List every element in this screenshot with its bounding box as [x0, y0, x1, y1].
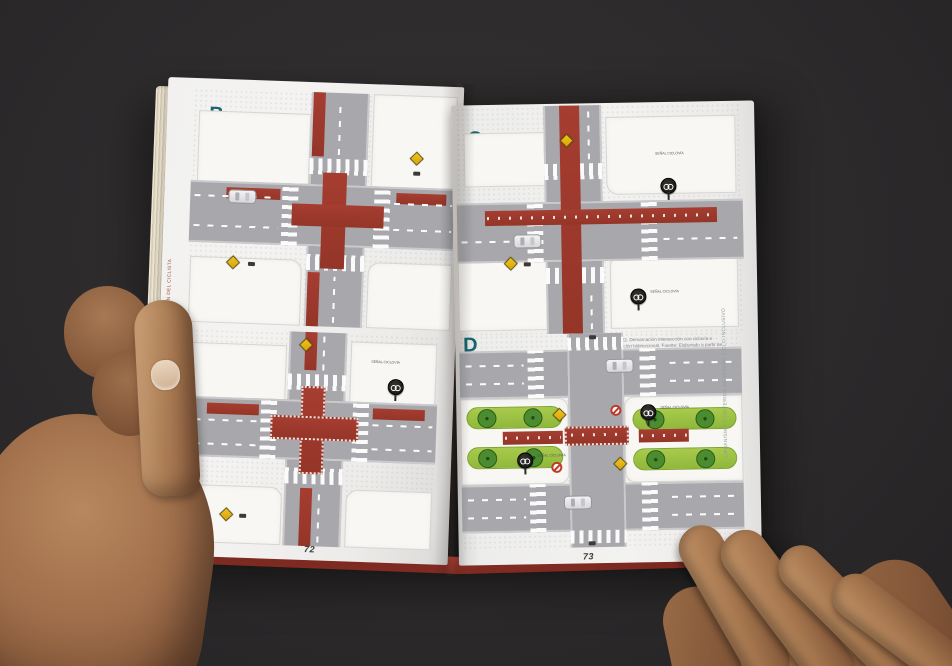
bike-lane-segment	[312, 92, 326, 156]
crosswalk	[639, 348, 656, 396]
tree	[696, 449, 715, 468]
crosswalk	[642, 482, 659, 530]
small-sign-plaque	[589, 335, 596, 339]
bike-crossing-horizontal	[291, 203, 384, 228]
page-number-left: 72	[304, 544, 315, 554]
car	[564, 495, 592, 509]
intersection-diagram-b-top	[186, 88, 458, 331]
sign-caption: SEÑAL CICLOVÍA	[660, 406, 692, 411]
car	[513, 234, 541, 248]
small-sign-plaque	[413, 172, 420, 176]
car	[605, 359, 633, 373]
sign-caption-wrap: SEÑAL CICLOVÍA	[650, 289, 720, 298]
sign-caption-wrap: SEÑAL CICLOVÍA	[660, 405, 724, 414]
small-sign-plaque	[239, 514, 246, 518]
bike-lane-segment	[298, 488, 312, 546]
sign-post	[668, 194, 670, 200]
sign-post	[524, 468, 526, 474]
tree	[478, 449, 497, 468]
city-block	[344, 489, 432, 550]
small-sign-plaque	[248, 262, 255, 266]
sign-post	[394, 395, 396, 401]
sign-caption: SEÑAL CICLOVÍA	[537, 454, 569, 459]
bike-crossing-horizontal	[270, 415, 359, 442]
bike-lane-segment	[373, 408, 425, 421]
tree	[646, 450, 665, 469]
sign-post	[648, 420, 650, 426]
median-green-strip	[466, 406, 562, 430]
right-page: C Figura 21. Demarcación intersección co…	[451, 100, 762, 565]
bike-lane-segment	[207, 403, 259, 416]
crosswalk	[530, 484, 547, 532]
left-hand-thumb	[133, 299, 201, 498]
small-sign-plaque	[589, 541, 596, 545]
intersection-diagram-b-bottom: SEÑAL CICLOVÍA	[172, 328, 439, 551]
median-bikeway-diagram-d: SEÑAL CICLOVÍA SEÑAL CICLOVÍA	[459, 331, 745, 550]
page-number-right: 73	[583, 551, 594, 561]
sign-caption: SEÑAL CICLOVÍA	[371, 360, 401, 365]
intersection-diagram-c: SEÑAL CICLOVÍA SEÑAL CICLOVÍA	[455, 103, 745, 336]
tree	[477, 409, 496, 428]
median-green-strip	[633, 447, 737, 471]
crosswalk	[527, 350, 544, 398]
sign-caption-wrap: SEÑAL CICLOVÍA	[537, 453, 601, 462]
sign-caption-wrap: SEÑAL CICLOVÍA	[652, 151, 722, 160]
bike-lane-segment	[306, 272, 320, 326]
photo-scene: MANUAL DE INFRAESTRUCTURA CICLO-INCLUSIV…	[0, 0, 952, 666]
sign-post	[638, 304, 640, 310]
tree	[523, 408, 542, 427]
sign-caption: SEÑAL CICLOVÍA	[652, 152, 687, 157]
city-block	[188, 256, 302, 326]
car	[228, 189, 256, 204]
crosswalk	[570, 530, 626, 544]
sign-caption: SEÑAL CICLOVÍA	[650, 290, 685, 295]
small-sign-plaque	[524, 262, 531, 266]
